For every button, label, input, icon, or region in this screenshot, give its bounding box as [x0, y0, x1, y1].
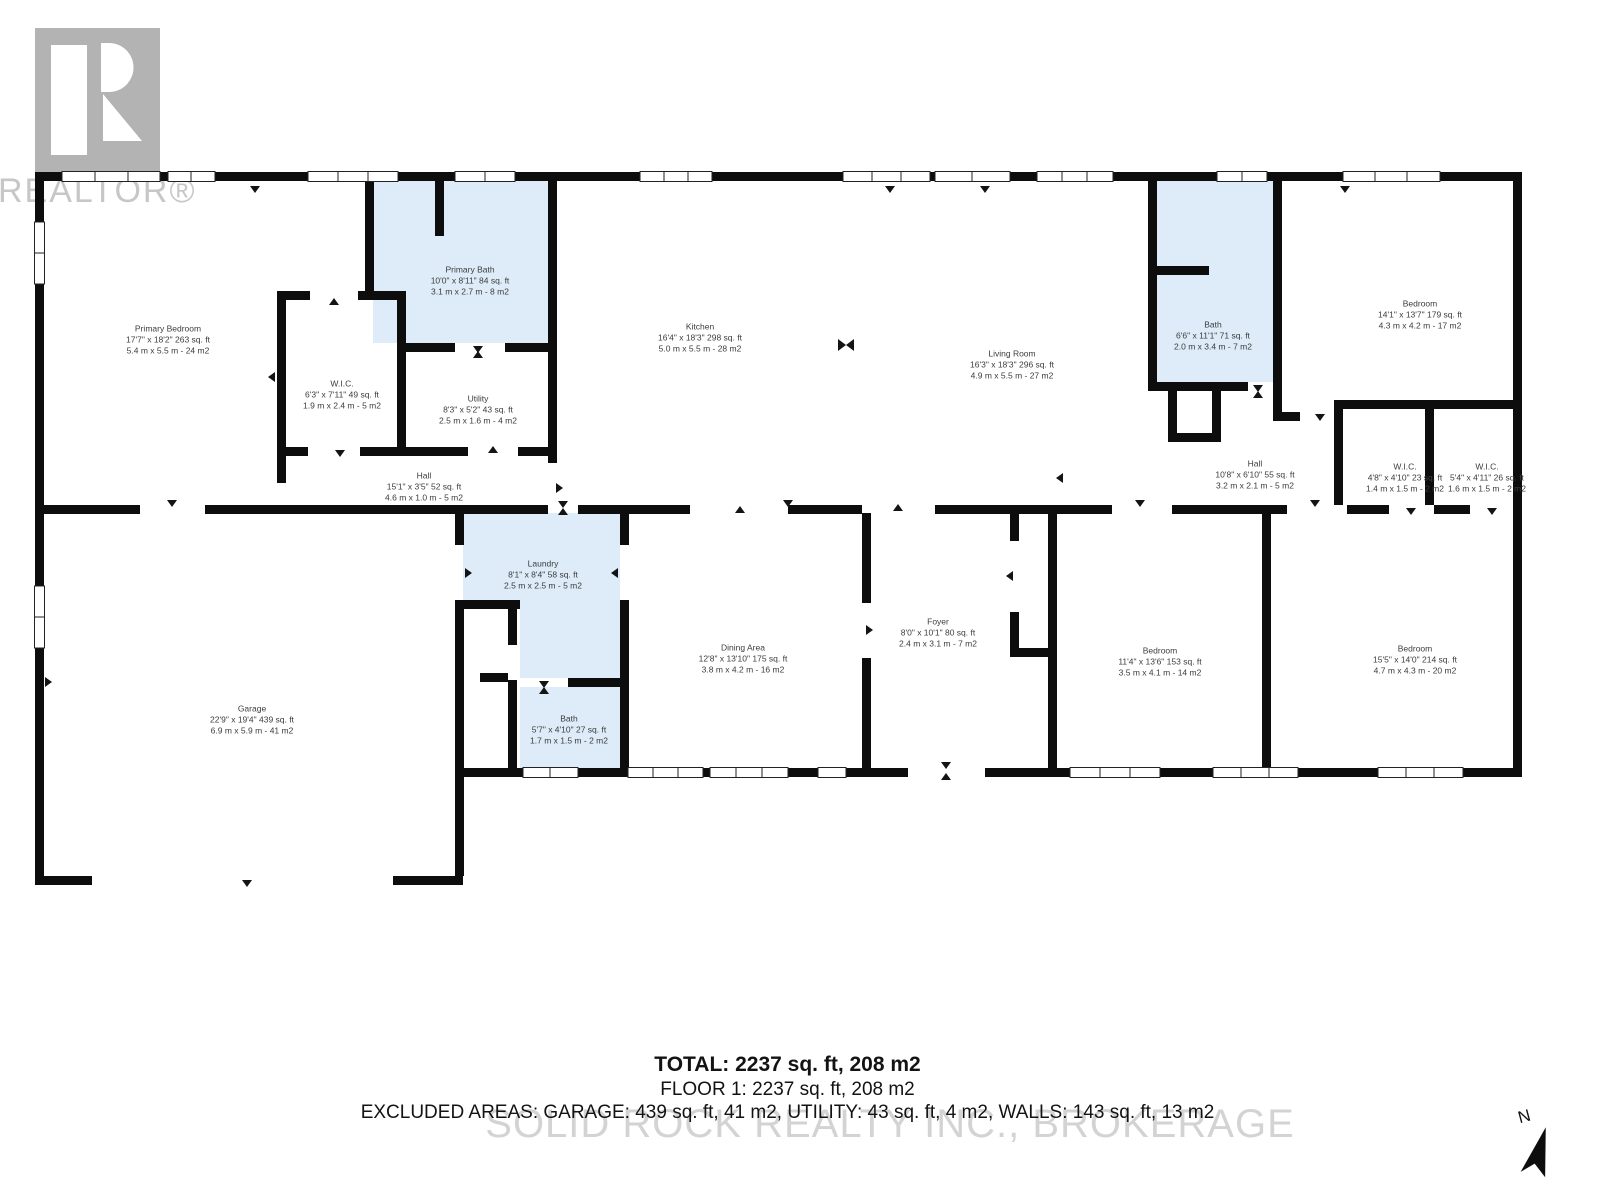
floor-plan-page: REALTOR®: [0, 0, 1600, 1200]
wall-joint-icon: [838, 339, 854, 351]
floor1-area-line: FLOOR 1: 2237 sq. ft, 208 m2: [0, 1078, 1575, 1101]
walls: [35, 172, 1522, 885]
excluded-areas-line: EXCLUDED AREAS: GARAGE: 439 sq. ft, 41 m…: [0, 1101, 1575, 1124]
total-area-line: TOTAL: 2237 sq. ft, 208 m2: [0, 1052, 1575, 1078]
floor-plan-drawing: [0, 0, 1600, 1200]
area-summary: TOTAL: 2237 sq. ft, 208 m2 FLOOR 1: 2237…: [0, 1052, 1575, 1124]
